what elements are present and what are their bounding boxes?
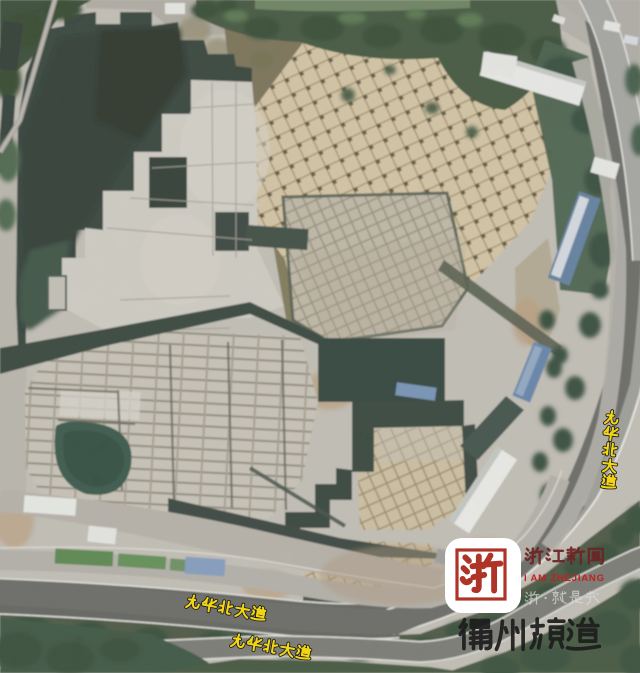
svg-text:I AM ZHEJIANG: I AM ZHEJIANG	[524, 573, 605, 584]
